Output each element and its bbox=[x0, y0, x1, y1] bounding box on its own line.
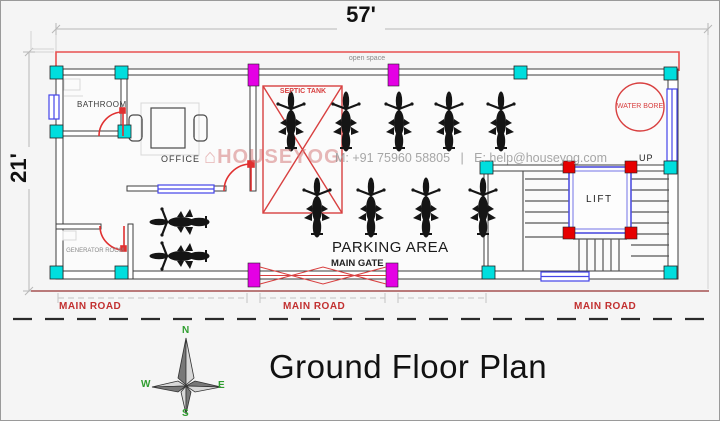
open-space-label: open space bbox=[337, 55, 397, 62]
compass-rose-icon bbox=[152, 338, 221, 414]
dimension-height-label: 21' bbox=[8, 146, 30, 190]
compass-south-label: S bbox=[182, 409, 189, 419]
compass-east-label: E bbox=[218, 381, 225, 391]
lift-label: LIFT bbox=[586, 195, 613, 205]
main-road-label-left: MAIN ROAD bbox=[59, 302, 121, 312]
compass-north-label: N bbox=[182, 326, 189, 336]
parking-area-label: PARKING AREA bbox=[332, 240, 449, 255]
main-road-label-right: MAIN ROAD bbox=[574, 302, 636, 312]
bathroom-label: BATHROOM bbox=[77, 101, 127, 109]
septic-tank-label: SEPTIC TANK bbox=[264, 88, 342, 95]
watermark-brand: ⌂HOUSEYOG bbox=[204, 147, 341, 167]
main-road-label-center: MAIN ROAD bbox=[283, 302, 345, 312]
floor-plan-page: 57' 21' open space BATHROOM OFFICE SEPTI… bbox=[0, 0, 720, 421]
generator-room-label: GENERATOR ROOM bbox=[61, 248, 129, 254]
office-label: OFFICE bbox=[161, 155, 200, 164]
house-icon: ⌂ bbox=[204, 146, 217, 168]
up-label: UP bbox=[639, 154, 654, 163]
dimension-width-label: 57' bbox=[331, 4, 391, 26]
watermark-contact: M: +91 75960 58805 | E: help@houseyog.co… bbox=[335, 152, 607, 165]
water-bore-label: WATER BORE bbox=[611, 103, 669, 110]
page-title: Ground Floor Plan bbox=[269, 350, 537, 383]
main-gate-label: MAIN GATE bbox=[331, 259, 384, 269]
compass-west-label: W bbox=[141, 380, 150, 390]
